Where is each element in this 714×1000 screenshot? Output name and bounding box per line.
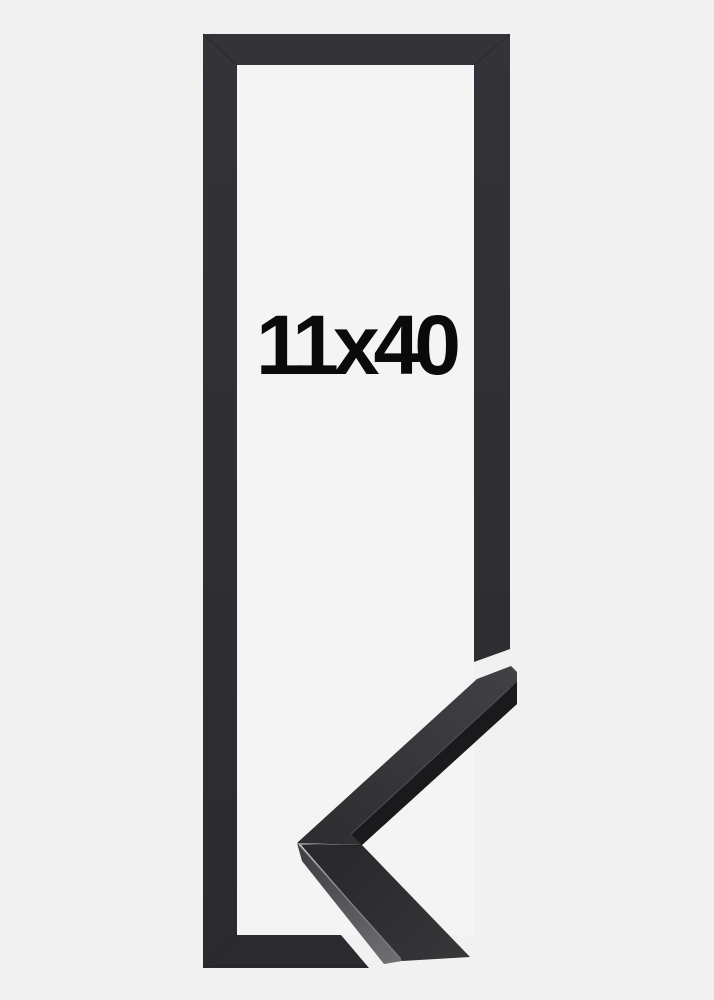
size-label: 11x40 (237, 303, 474, 387)
frame-illustration (0, 0, 714, 1000)
product-image-frame: 11x40 (0, 0, 714, 1000)
